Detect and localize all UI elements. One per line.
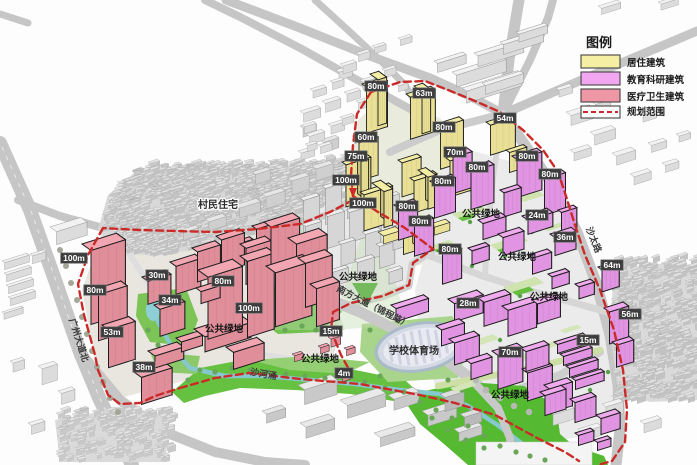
svg-text:63m: 63m: [415, 88, 432, 98]
svg-text:100m: 100m: [238, 303, 260, 313]
svg-text:34m: 34m: [161, 295, 178, 305]
svg-text:公共绿地: 公共绿地: [462, 208, 501, 220]
svg-text:公共绿地: 公共绿地: [339, 271, 378, 283]
svg-text:100m: 100m: [352, 198, 374, 208]
svg-text:图例: 图例: [586, 35, 612, 50]
svg-text:80m: 80m: [367, 81, 384, 91]
svg-text:24m: 24m: [528, 210, 545, 220]
svg-text:30m: 30m: [148, 270, 165, 280]
svg-text:80m: 80m: [411, 216, 428, 226]
svg-text:28m: 28m: [459, 298, 476, 308]
svg-text:村民住宅: 村民住宅: [198, 198, 238, 211]
svg-text:学校体育场: 学校体育场: [389, 344, 439, 357]
svg-text:75m: 75m: [347, 151, 364, 161]
svg-text:80m: 80m: [398, 201, 415, 211]
svg-text:80m: 80m: [214, 276, 231, 286]
svg-text:公共绿地: 公共绿地: [301, 353, 340, 365]
svg-text:规划范围: 规划范围: [627, 106, 665, 118]
svg-text:100m: 100m: [63, 253, 85, 263]
svg-text:70m: 70m: [501, 347, 518, 357]
svg-text:80m: 80m: [435, 122, 452, 132]
svg-text:38m: 38m: [135, 362, 152, 372]
svg-text:64m: 64m: [603, 260, 620, 270]
svg-text:80m: 80m: [468, 162, 485, 172]
svg-text:15m: 15m: [322, 326, 339, 336]
svg-text:公共绿地: 公共绿地: [530, 291, 569, 303]
svg-text:80m: 80m: [434, 176, 451, 186]
svg-text:53m: 53m: [103, 327, 120, 337]
svg-text:36m: 36m: [556, 232, 573, 242]
svg-text:医疗卫生建筑: 医疗卫生建筑: [627, 91, 685, 103]
svg-text:公共绿地: 公共绿地: [205, 323, 244, 335]
svg-text:56m: 56m: [621, 309, 638, 319]
svg-text:80m: 80m: [518, 151, 535, 161]
svg-text:70m: 70m: [446, 147, 463, 157]
svg-text:公共绿地: 公共绿地: [498, 251, 537, 263]
svg-text:80m: 80m: [86, 285, 103, 295]
svg-text:公共绿地: 公共绿地: [491, 389, 530, 401]
svg-text:60m: 60m: [357, 132, 374, 142]
svg-text:教育科研建筑: 教育科研建筑: [626, 74, 685, 86]
svg-text:80m: 80m: [541, 169, 558, 179]
svg-text:居住建筑: 居住建筑: [627, 57, 666, 69]
svg-text:15m: 15m: [579, 335, 596, 345]
svg-text:54m: 54m: [496, 113, 513, 123]
svg-text:100m: 100m: [335, 175, 357, 185]
svg-text:80m: 80m: [441, 244, 458, 254]
svg-text:4m: 4m: [338, 368, 351, 378]
